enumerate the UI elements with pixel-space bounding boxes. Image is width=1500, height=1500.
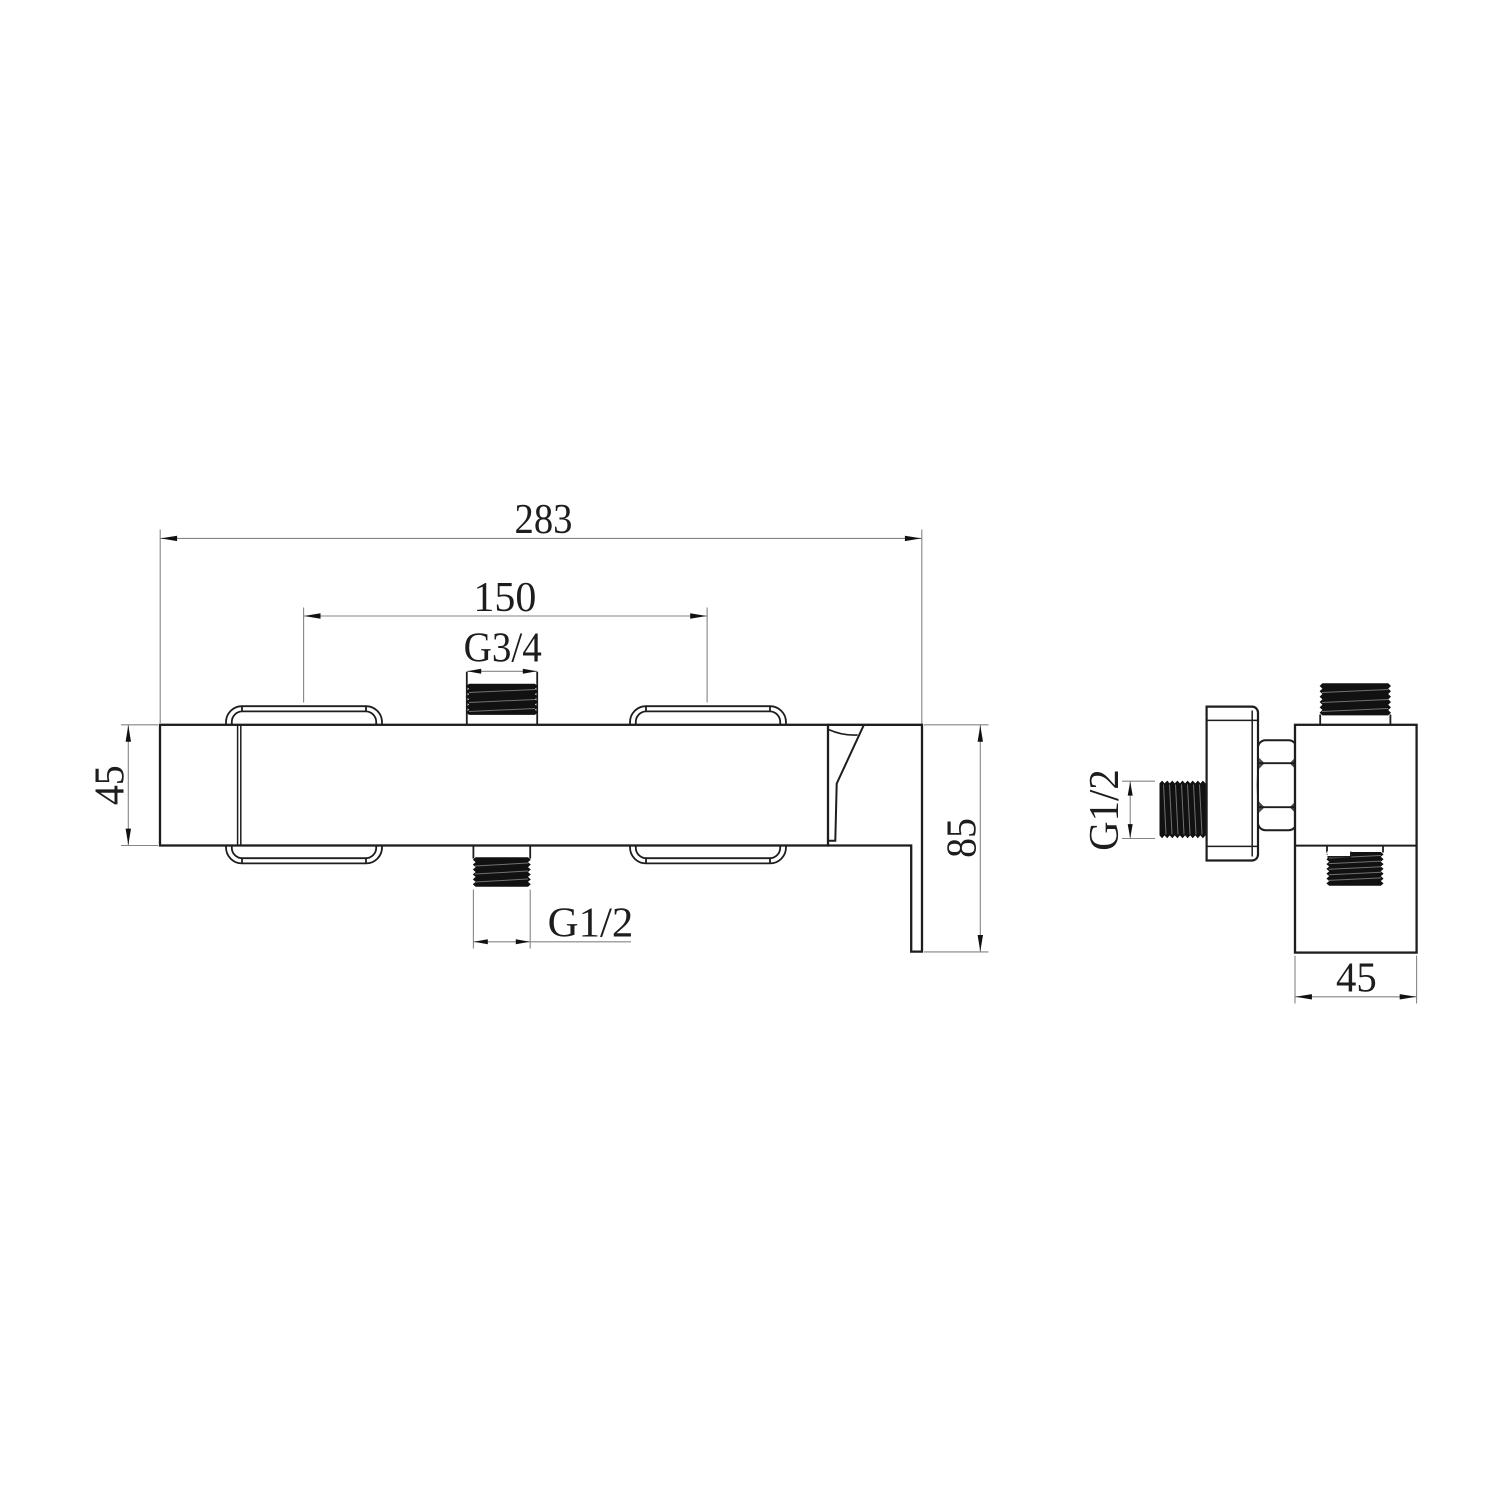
svg-text:150: 150 [473, 575, 536, 621]
svg-text:45: 45 [86, 765, 133, 805]
svg-text:283: 283 [515, 496, 573, 543]
svg-text:G1/2: G1/2 [1080, 769, 1127, 850]
svg-text:G3/4: G3/4 [464, 624, 542, 671]
svg-text:45: 45 [1336, 954, 1377, 1001]
svg-text:85: 85 [938, 818, 985, 858]
svg-text:G1/2: G1/2 [548, 900, 634, 947]
